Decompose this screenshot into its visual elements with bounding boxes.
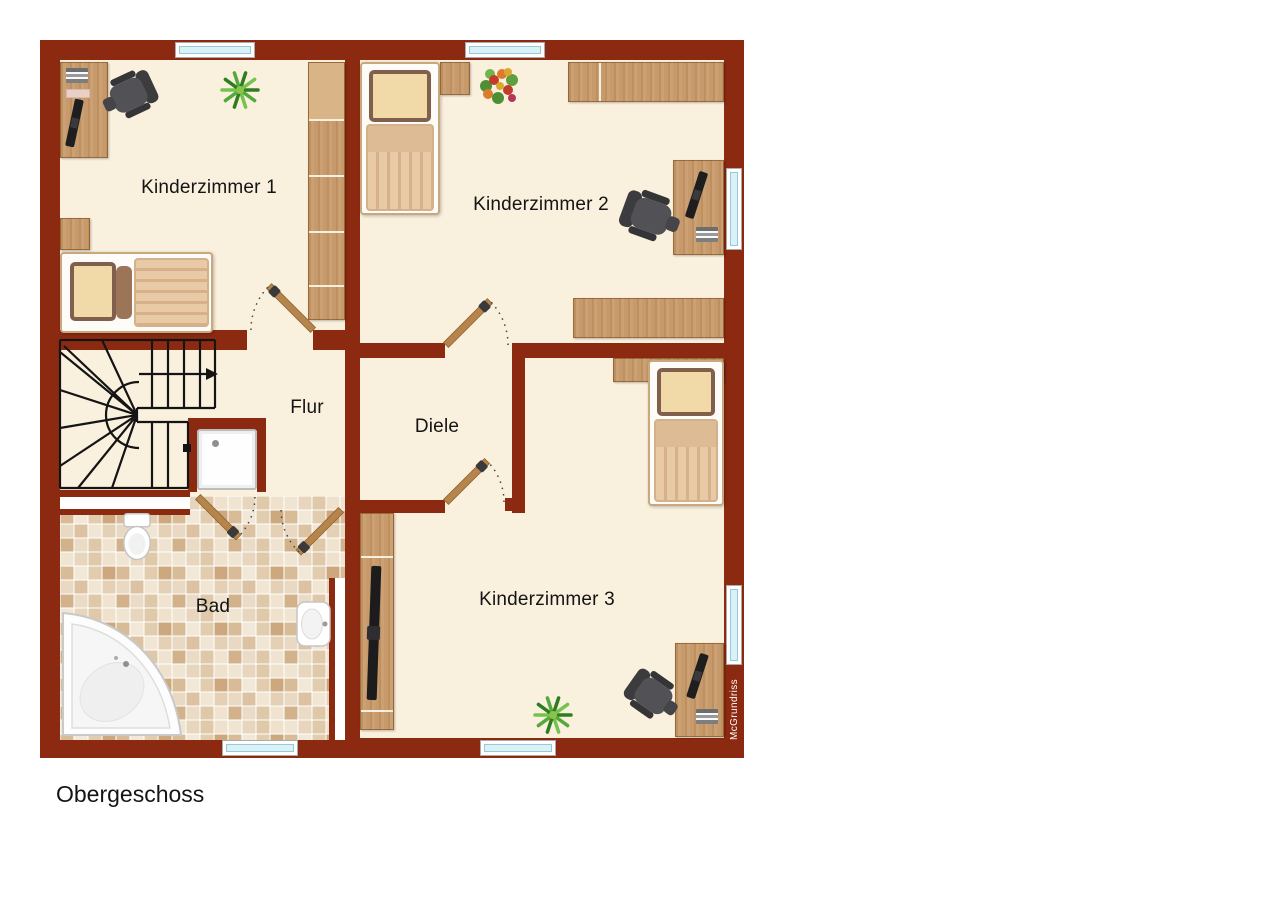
- room-label-kinderzimmer1: Kinderzimmer 1: [141, 177, 277, 199]
- door-icon: [442, 298, 508, 349]
- room-label-bad: Bad: [196, 596, 230, 618]
- door-icon: [194, 493, 255, 540]
- door-icon: [251, 283, 317, 334]
- room-label-flur: Flur: [290, 397, 324, 419]
- room-label-diele: Diele: [415, 416, 459, 438]
- stairs-icon: [60, 340, 215, 488]
- floor-title: Obergeschoss: [56, 781, 204, 808]
- door-icon: [281, 506, 345, 555]
- stair-start-marker: [183, 444, 191, 452]
- watermark-text: McGrundriss: [726, 630, 743, 740]
- floorplan-canvas: Kinderzimmer 1 Kinderzimmer 2 Kinderzimm…: [0, 0, 1280, 905]
- room-label-kinderzimmer2: Kinderzimmer 2: [473, 194, 609, 216]
- stair-direction-arrow: [206, 368, 218, 380]
- floorplan-obergeschoss: Kinderzimmer 1 Kinderzimmer 2 Kinderzimm…: [40, 40, 744, 758]
- door-icon: [442, 457, 504, 505]
- room-label-kinderzimmer3: Kinderzimmer 3: [479, 589, 615, 611]
- stairs-and-doors-overlay: [40, 40, 744, 758]
